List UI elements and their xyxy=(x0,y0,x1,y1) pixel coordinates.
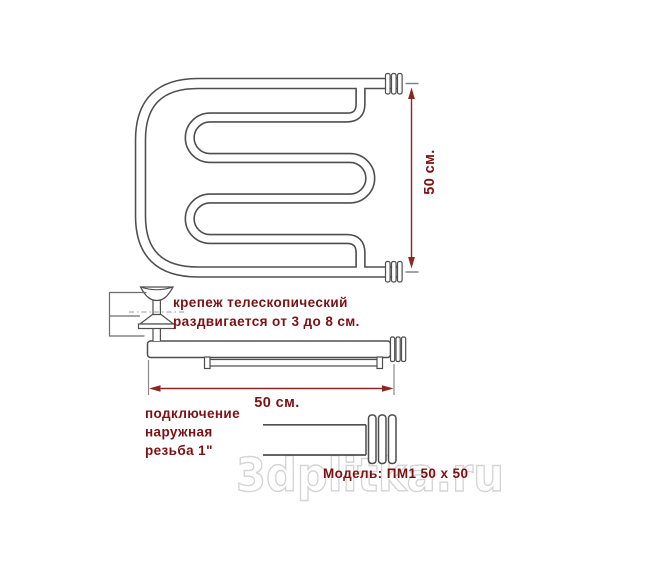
threaded-end-top xyxy=(386,74,403,95)
fastener-note-line2: раздвигается от 3 до 8 см. xyxy=(173,314,360,329)
connection-note-line3: резьба 1" xyxy=(145,443,213,458)
fastener-flange-plate xyxy=(139,324,176,329)
dimension-arrow-right xyxy=(382,385,394,392)
connection-note-line2: наружная xyxy=(145,425,213,440)
towel-rail-side-view: крепеж телескопический раздвигается от 3… xyxy=(110,287,406,411)
dimension-arrow-up xyxy=(408,88,415,100)
width-dimension-label: 50 см. xyxy=(254,395,299,411)
dimension-arrow-down xyxy=(408,257,415,269)
model-label: Модель: ПМ1 50 x 50 xyxy=(323,466,468,481)
fastener-wall-cup xyxy=(141,287,174,301)
diagram-svg: 3dplitka.ru xyxy=(0,0,666,563)
threaded-end-bottom xyxy=(386,262,403,283)
connection-note-line1: подключение xyxy=(145,406,240,421)
height-dimension-label: 50 см. xyxy=(422,149,438,194)
dimension-arrow-left xyxy=(149,385,161,392)
fastener-note-line1: крепеж телескопический xyxy=(173,295,348,310)
side-view-threaded-end xyxy=(391,337,406,362)
radiator-diagram-page: 3dplitka.ru xyxy=(0,0,666,563)
connection-detail: подключение наружная резьба 1" xyxy=(145,406,396,464)
width-dimension: 50 см. xyxy=(149,360,395,411)
side-view-pipe xyxy=(148,341,391,358)
fastener-leader-lines xyxy=(110,293,147,337)
side-view-serpentine-bar xyxy=(205,357,383,369)
fastener-cone xyxy=(140,315,174,325)
towel-rail-front-view: 50 см. xyxy=(141,74,439,283)
height-dimension: 50 см. xyxy=(408,88,438,269)
